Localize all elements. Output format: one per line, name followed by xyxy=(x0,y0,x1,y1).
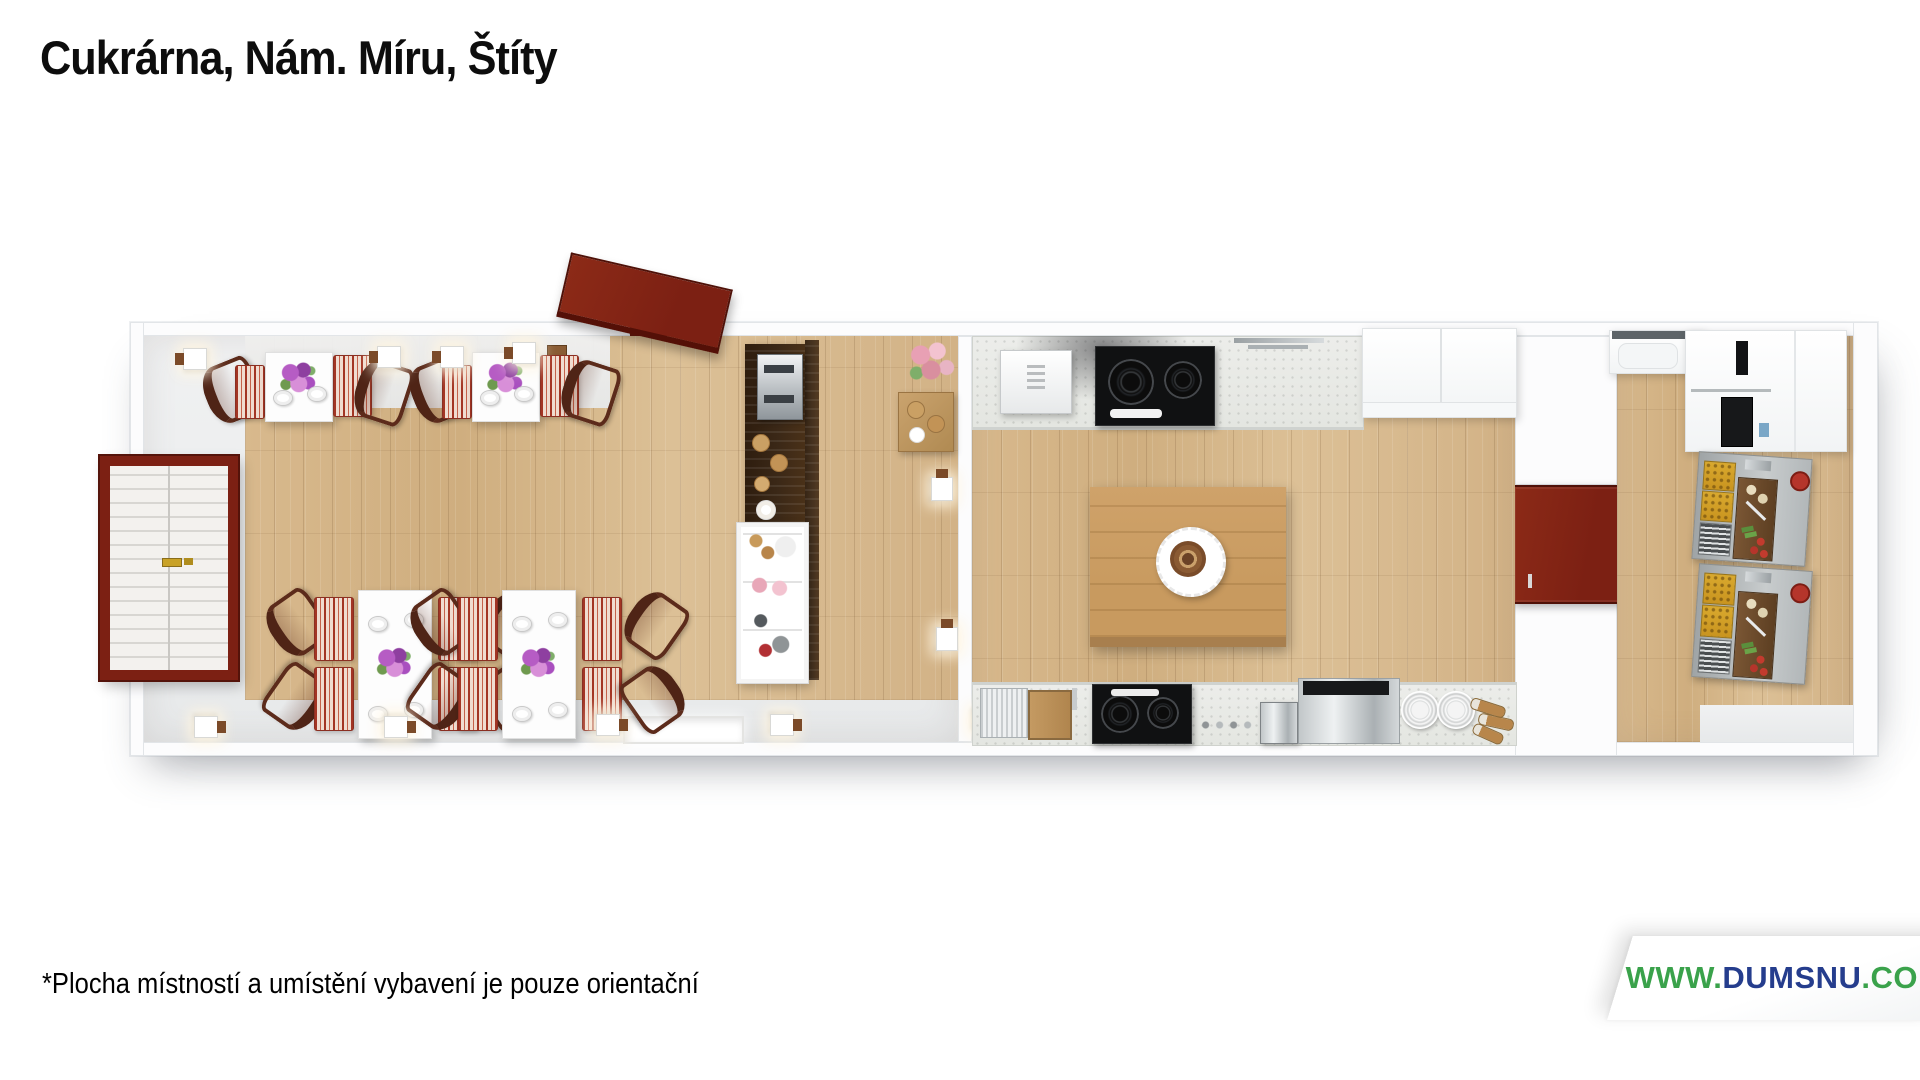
coffee-cup-icon xyxy=(514,386,534,402)
watermark-prefix: WWW. xyxy=(1626,960,1723,996)
watermark-suffix: .COM xyxy=(1861,960,1920,996)
coffee-cup-icon xyxy=(368,616,388,632)
wall-sconce-icon xyxy=(936,627,958,651)
service-door-handle-icon xyxy=(1528,574,1532,588)
burner-icon xyxy=(1101,695,1139,733)
stand-mixer-appliance xyxy=(1000,350,1072,414)
prep-island xyxy=(1090,487,1286,647)
display-fridge xyxy=(1691,563,1813,685)
bench-cushion xyxy=(314,667,354,731)
oven-door xyxy=(1721,397,1753,447)
room-cafe xyxy=(144,336,958,742)
food-tray xyxy=(1702,573,1736,606)
wall-divider-cafe-kitchen xyxy=(958,336,972,742)
utensil-rail-icon xyxy=(1248,345,1308,349)
grill-rack xyxy=(1698,522,1732,556)
floor-plan xyxy=(130,322,1878,756)
plate-icon xyxy=(756,500,776,520)
cake-icon xyxy=(1170,541,1206,577)
cheese-icon xyxy=(1757,607,1768,618)
rose-bouquet xyxy=(905,340,957,390)
coffee-cup-icon xyxy=(512,616,532,632)
watermark-banner: WWW.DUMSNU.COM xyxy=(1607,936,1920,1020)
cabinet-seam xyxy=(1794,331,1796,451)
coffee-cup-icon xyxy=(307,386,327,402)
pastry-icon xyxy=(752,434,770,452)
gas-cooktop xyxy=(1092,684,1192,744)
oven-column-unit xyxy=(1685,330,1847,452)
coffee-cup-icon xyxy=(512,706,532,722)
bench-cushion xyxy=(458,667,498,731)
espresso-machine xyxy=(757,354,803,420)
herb-icon xyxy=(1741,526,1754,533)
food-tray xyxy=(1700,490,1734,522)
bench-cushion xyxy=(314,597,354,661)
display-strip xyxy=(1736,341,1748,375)
page-title: Cukrárna, Nám. Míru, Štíty xyxy=(40,30,557,85)
burner-icon xyxy=(1147,697,1179,729)
bench-seat xyxy=(442,365,472,419)
machine-slot xyxy=(764,395,794,403)
faucet-icon xyxy=(1072,688,1077,710)
bench-cushion xyxy=(458,597,498,661)
wall-divider-kitchen-storage-lower xyxy=(1515,600,1617,756)
trash-bin xyxy=(1260,702,1298,744)
cheese-icon xyxy=(1746,599,1757,610)
wall-sconce-icon xyxy=(512,342,536,364)
coffee-cup-icon xyxy=(480,390,500,406)
wall-sconce-icon xyxy=(194,716,218,738)
tomato-icon xyxy=(1756,537,1765,546)
cheese-icon xyxy=(1757,493,1768,504)
food-tray xyxy=(1700,604,1734,638)
room-kitchen xyxy=(972,336,1515,742)
handle-rail-icon xyxy=(1691,389,1771,392)
bench-cushion xyxy=(582,597,622,661)
knife-icon xyxy=(1745,617,1766,637)
display-fridge xyxy=(1691,451,1812,567)
wall-cabinets xyxy=(1362,328,1517,418)
storage-floor-strip xyxy=(1700,705,1853,742)
wall-divider-kitchen-storage-upper xyxy=(1515,336,1617,485)
plate-stack-icon xyxy=(1401,691,1439,729)
energy-label xyxy=(1759,423,1769,437)
gas-cooktop xyxy=(1095,346,1215,426)
door-handle-icon xyxy=(162,558,182,567)
freezer-lid xyxy=(1618,343,1678,369)
wall-sconce-icon xyxy=(770,714,794,736)
cheese-icon xyxy=(1746,485,1757,496)
coffee-cup-icon xyxy=(273,390,293,406)
watermark-name: DUMSNU xyxy=(1722,960,1861,996)
sink-drainer xyxy=(980,688,1028,738)
plate-icon xyxy=(909,427,925,443)
wall-sconce-icon xyxy=(377,346,401,368)
wall-sconce-icon xyxy=(596,714,620,736)
door-handle-icon xyxy=(184,558,193,565)
utensil-rail-icon xyxy=(1234,338,1324,343)
wall-sconce-icon xyxy=(931,477,953,501)
pastry-icon xyxy=(770,454,788,472)
wall-sconce-icon xyxy=(384,716,408,738)
display-case-goods xyxy=(743,529,802,677)
burner-icon xyxy=(1164,361,1202,399)
flower-centerpiece xyxy=(520,646,556,680)
watermark-url: WWW.DUMSNU.COM xyxy=(1620,936,1920,1020)
veg-cutting-board xyxy=(1732,477,1778,562)
burner-icon xyxy=(1108,359,1154,405)
red-knob-icon xyxy=(1789,471,1810,492)
coffee-cup-icon xyxy=(548,612,568,628)
plate-icon xyxy=(927,415,945,433)
wall-right xyxy=(1853,322,1878,756)
wall-sconce-icon xyxy=(183,348,207,370)
small-utensils xyxy=(1200,720,1256,730)
coffee-cup-icon xyxy=(548,702,568,718)
pastry-display-case xyxy=(737,523,808,683)
entrance-double-door xyxy=(100,456,238,680)
chrome-fitting xyxy=(1745,571,1772,583)
disclaimer-text: *Plocha místností a umístění vybavení je… xyxy=(42,968,699,1001)
vent-slots xyxy=(1027,363,1045,389)
tomato-icon xyxy=(1756,655,1765,664)
herb-icon xyxy=(1741,642,1754,649)
red-knob-icon xyxy=(1790,583,1811,604)
bench-seat xyxy=(235,365,265,419)
flower-centerpiece xyxy=(376,646,412,680)
wall-top-left xyxy=(130,322,630,336)
room-storage xyxy=(1617,336,1853,742)
chrome-fitting xyxy=(1745,459,1772,471)
cake-platter xyxy=(1156,527,1226,597)
control-strip xyxy=(1111,689,1159,696)
door-center-split xyxy=(168,466,170,670)
cabinet-front-lip xyxy=(1363,402,1516,417)
plate-icon xyxy=(907,401,925,419)
induction-top xyxy=(1303,681,1389,695)
cutting-board xyxy=(1028,690,1072,740)
control-strip xyxy=(1110,409,1162,418)
side-table xyxy=(898,392,954,452)
grill-rack xyxy=(1697,638,1731,674)
dishwasher-unit xyxy=(1298,678,1400,744)
veg-cutting-board xyxy=(1732,591,1778,680)
machine-slot xyxy=(764,365,794,373)
plate-stack-icon xyxy=(1437,691,1475,729)
wall-sconce-icon xyxy=(440,346,464,368)
pastry-icon xyxy=(754,476,770,492)
food-tray xyxy=(1702,461,1736,492)
